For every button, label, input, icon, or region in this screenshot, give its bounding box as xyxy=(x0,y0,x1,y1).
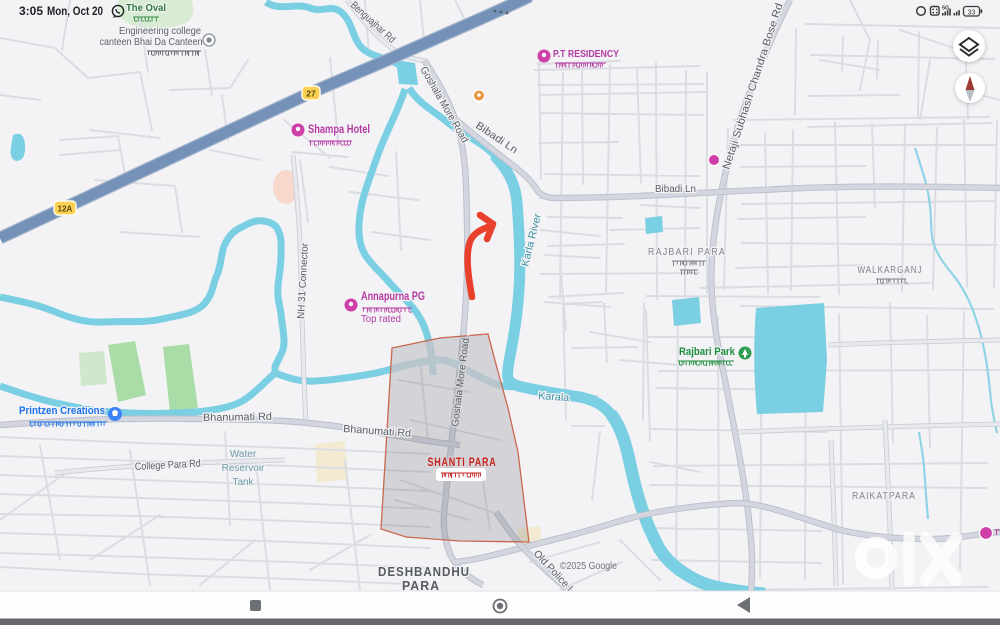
svg-text:P.T RESIDENCY: P.T RESIDENCY xyxy=(553,48,619,60)
svg-text:Reservoir: Reservoir xyxy=(222,463,265,474)
svg-text:DESHBANDHU: DESHBANDHU xyxy=(378,565,470,579)
svg-text:RAIKATPARA: RAIKATPARA xyxy=(852,491,916,502)
svg-text:I N D I A: I N D I A xyxy=(931,582,953,588)
svg-text:Top rated: Top rated xyxy=(361,313,401,325)
svg-text:Tank: Tank xyxy=(232,477,254,488)
svg-text:Rajbari Park: Rajbari Park xyxy=(679,346,736,358)
svg-text:RAJBARI PARA: RAJBARI PARA xyxy=(648,247,726,258)
svg-text:SHANTI PARA: SHANTI PARA xyxy=(428,455,497,469)
svg-text:12A: 12A xyxy=(58,205,73,214)
svg-text:Annapurna PG: Annapurna PG xyxy=(361,291,425,303)
svg-text:The Oval: The Oval xyxy=(126,2,166,14)
svg-text:canteen Bhai Da Canteen: canteen Bhai Da Canteen xyxy=(100,36,203,48)
svg-text:Water: Water xyxy=(230,449,257,460)
svg-text:27: 27 xyxy=(306,89,316,99)
svg-text:3:05: 3:05 xyxy=(19,4,43,18)
svg-text:Bhanumati Rd: Bhanumati Rd xyxy=(203,411,272,424)
svg-text:WALKARGANJ: WALKARGANJ xyxy=(858,265,923,276)
svg-text:©2025 Google: ©2025 Google xyxy=(560,561,617,572)
svg-text:33: 33 xyxy=(968,9,976,16)
svg-text:Karala: Karala xyxy=(538,390,570,404)
svg-text:Printzen Creations: Printzen Creations xyxy=(19,405,105,417)
svg-text:Mon, Oct 20: Mon, Oct 20 xyxy=(47,4,103,18)
svg-text:Bibadi Ln: Bibadi Ln xyxy=(655,183,696,195)
svg-text:Shampa Hotel: Shampa Hotel xyxy=(308,124,370,136)
